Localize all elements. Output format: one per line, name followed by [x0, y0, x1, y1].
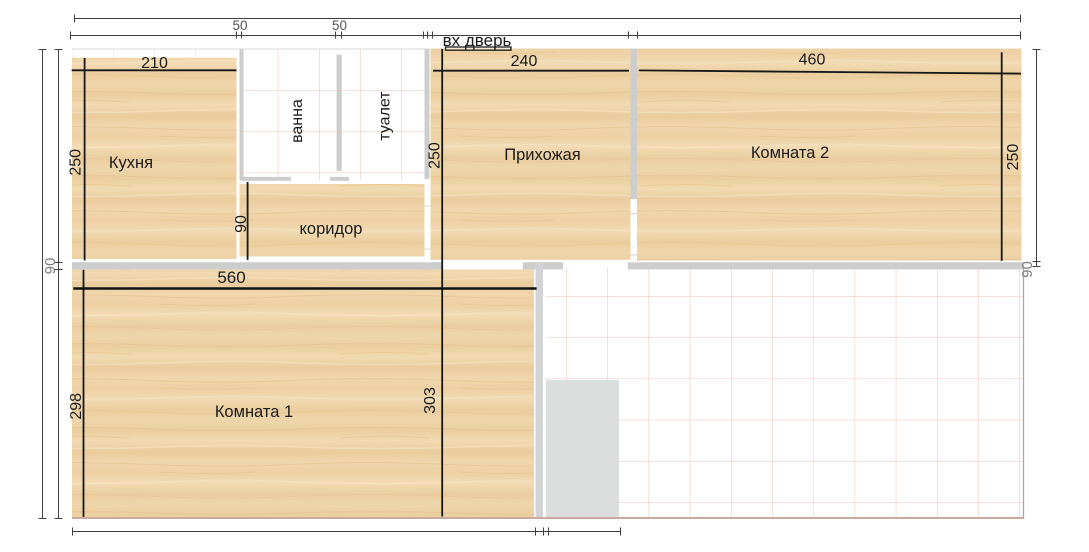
svg-text:460: 460: [799, 52, 826, 69]
svg-text:Комната 1: Комната 1: [215, 403, 293, 421]
svg-text:303: 303: [422, 387, 439, 414]
svg-text:90: 90: [233, 215, 250, 233]
svg-text:туалет: туалет: [377, 91, 394, 141]
svg-text:250: 250: [427, 142, 444, 169]
svg-text:Кухня: Кухня: [109, 154, 153, 172]
svg-text:298: 298: [68, 393, 85, 420]
svg-text:вх дверь: вх дверь: [443, 31, 512, 50]
svg-text:90: 90: [42, 258, 59, 275]
svg-text:250: 250: [67, 149, 84, 176]
svg-text:250: 250: [1005, 144, 1022, 171]
svg-text:210: 210: [141, 55, 168, 72]
svg-text:Комната 2: Комната 2: [751, 144, 829, 162]
svg-text:240: 240: [511, 53, 538, 70]
svg-text:50: 50: [232, 18, 247, 33]
svg-text:560: 560: [217, 268, 245, 287]
svg-text:Прихожая: Прихожая: [504, 146, 580, 164]
svg-text:90: 90: [1019, 261, 1036, 278]
svg-text:ванна: ванна: [289, 99, 306, 143]
svg-text:50: 50: [332, 18, 347, 33]
svg-text:коридор: коридор: [300, 220, 363, 238]
